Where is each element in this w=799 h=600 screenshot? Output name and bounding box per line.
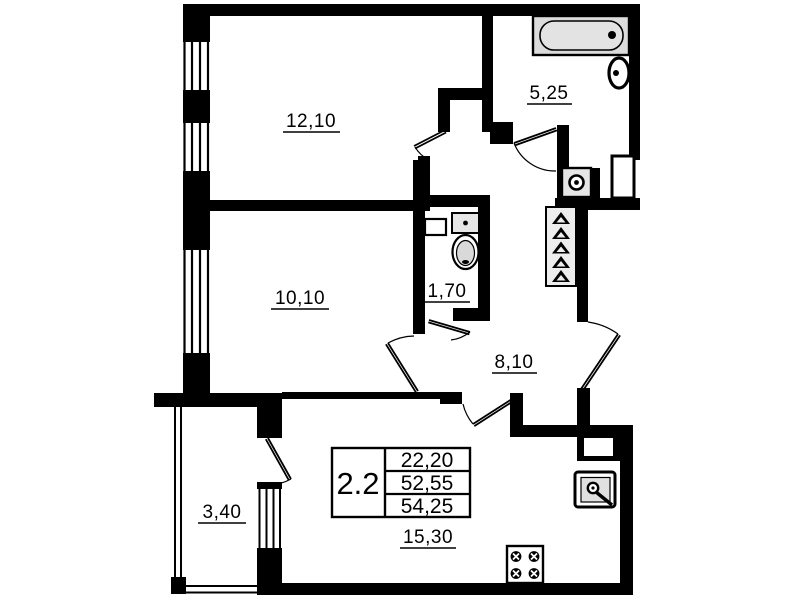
bathtub-drain xyxy=(608,31,616,39)
stove xyxy=(507,546,543,583)
floor-plan: 12,10 5,25 10,10 1,70 8,10 3,40 15,30 2.… xyxy=(0,0,799,600)
kitchen-wall-niche xyxy=(584,438,613,456)
duct-shaft xyxy=(612,156,634,198)
wc-niche xyxy=(425,219,446,235)
wall-left-seg1 xyxy=(183,4,210,42)
area-label-bathroom: 5,25 xyxy=(530,83,569,104)
wall-right-top xyxy=(629,4,640,160)
wall-balcony-door-top xyxy=(257,407,282,438)
info-row-1: 22,20 xyxy=(401,449,454,472)
wall-bottom xyxy=(257,583,633,595)
area-label-room1: 12,10 xyxy=(286,111,336,132)
wall-kitchen-entry-h xyxy=(523,425,577,437)
wall-hall-right xyxy=(577,198,588,322)
wall-balcony-lower-right xyxy=(257,548,282,583)
door-room1 xyxy=(414,130,446,160)
door-entrance xyxy=(581,322,620,390)
area-label-hallway: 8,10 xyxy=(495,352,534,373)
window-balcony-partition xyxy=(260,489,281,548)
wall-under-room2-end xyxy=(440,392,462,404)
floor-plan-page: 12,10 5,25 10,10 1,70 8,10 3,40 15,30 2.… xyxy=(0,0,799,600)
wall-bathroom-left xyxy=(482,16,493,132)
wall-under-room2 xyxy=(282,392,462,399)
door-room2 xyxy=(386,336,418,392)
area-label-kitchen-living: 15,30 xyxy=(403,527,453,548)
door-wc xyxy=(428,320,470,340)
wall-balcony-top xyxy=(154,393,282,407)
info-box: 2.2 22,20 52,55 54,25 xyxy=(332,448,470,518)
washing-machine xyxy=(562,168,591,197)
area-label-wc: 1,70 xyxy=(428,281,467,302)
wall-nook-v xyxy=(438,100,450,132)
window-room2 xyxy=(185,250,209,353)
wall-wc-bottom xyxy=(453,308,490,321)
door-balcony xyxy=(266,438,291,485)
door-kitchen-living xyxy=(463,399,513,426)
wall-wc-top xyxy=(425,195,490,207)
wall-between-rooms xyxy=(183,200,430,211)
kitchen-sink xyxy=(575,472,615,507)
wall-kitchen-right xyxy=(620,455,633,595)
wall-top xyxy=(183,4,640,16)
wall-left-seg4 xyxy=(183,353,210,393)
toilet xyxy=(452,213,479,269)
wall-left-seg2 xyxy=(183,90,210,123)
window-room1-lower xyxy=(185,123,209,171)
balcony-outer-wall xyxy=(175,405,257,593)
area-label-room2: 10,10 xyxy=(275,288,325,309)
door-bathroom xyxy=(514,128,557,171)
window-room1-upper xyxy=(185,42,209,90)
wall-bath-door-corner xyxy=(490,122,513,144)
info-row-2: 52,55 xyxy=(401,472,454,495)
wall-wc-left xyxy=(413,160,425,334)
bathtub xyxy=(533,16,629,55)
wardrobe xyxy=(546,207,576,286)
info-row-3: 54,25 xyxy=(401,495,454,518)
washbasin xyxy=(609,58,629,88)
area-label-balcony: 3,40 xyxy=(203,502,242,523)
unit-type-label: 2.2 xyxy=(336,466,379,501)
wall-nook-h xyxy=(438,88,493,100)
